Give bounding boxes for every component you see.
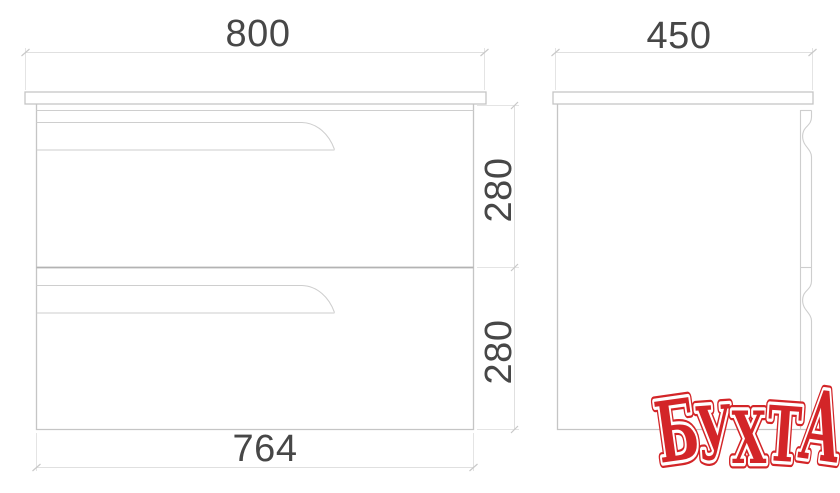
logo-letter-3: Х Х — [732, 397, 767, 481]
front-countertop — [25, 92, 486, 104]
side-cabinet-body — [558, 104, 812, 430]
logo-letter-fill: У — [693, 390, 735, 478]
dim-label-width: 800 — [226, 13, 291, 55]
logo-letter-fill: Х — [732, 397, 767, 481]
cabinet-dimension-drawing: 800 450 280 280 — [0, 0, 840, 493]
technical-drawing-canvas: 800 450 280 280 — [0, 0, 840, 493]
brand-logo: Б Б У У Х Х Т Т А А — [650, 369, 840, 486]
dimension-inner-width: 764 — [33, 428, 478, 471]
side-view — [553, 92, 813, 430]
front-view — [25, 92, 486, 430]
dimension-depth: 450 — [552, 15, 817, 90]
side-countertop — [553, 92, 813, 104]
dim-label-drawer1-height: 280 — [478, 158, 520, 223]
dim-label-inner-width: 764 — [233, 428, 298, 470]
dim-label-drawer2-height: 280 — [478, 320, 520, 385]
front-drawer1-handle-top — [37, 123, 335, 150]
dimension-drawer-heights: 280 280 — [477, 102, 520, 433]
front-drawer2-handle-top — [37, 286, 335, 313]
dimension-width: 800 — [22, 13, 489, 90]
logo-letter-2: У У — [693, 390, 735, 478]
dim-label-depth: 450 — [647, 15, 712, 57]
